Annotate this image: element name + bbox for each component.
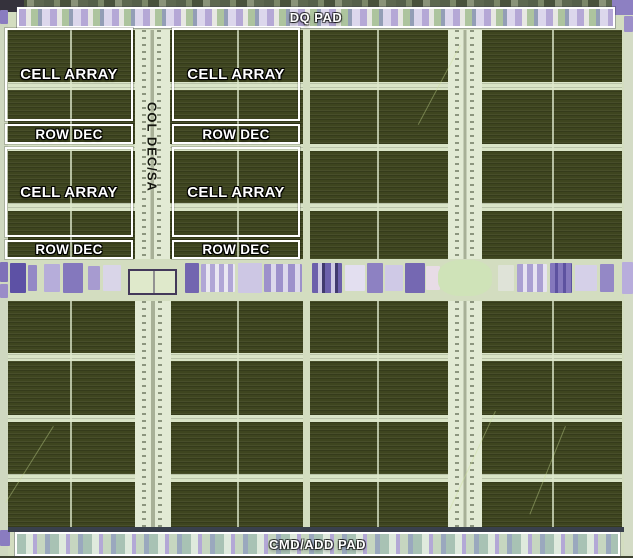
periphery-block — [63, 263, 83, 293]
periphery-block — [600, 264, 614, 292]
col-dec-sa-label: COL DEC/SA — [134, 86, 170, 208]
row-dec-label: ROW DEC — [202, 242, 269, 257]
cmd-add-pad-band: CMD/ADD PAD — [15, 532, 620, 556]
periphery-block — [345, 265, 365, 291]
cmd-add-pad-label: CMD/ADD PAD — [269, 537, 366, 552]
cell-array-label: CELL ARRAY — [187, 184, 284, 201]
cell-array-panel-lower-left — [8, 301, 303, 529]
periphery-block — [367, 263, 383, 293]
row-dec-label: ROW DEC — [35, 242, 102, 257]
periphery-block — [103, 265, 121, 291]
edge-pad-blob — [0, 284, 8, 298]
cell-array-label: CELL ARRAY — [20, 66, 117, 83]
row-dec-annotation-box: ROW DEC — [5, 240, 133, 259]
edge-pad-blob — [622, 262, 633, 294]
periphery-green-blob — [438, 260, 492, 296]
periphery-block — [238, 263, 262, 293]
row-dec-annotation-box: ROW DEC — [172, 124, 300, 144]
dq-pad-label: DQ PAD — [290, 10, 343, 25]
fuse-box-divider — [153, 271, 155, 293]
cell-array-label: CELL ARRAY — [187, 66, 284, 83]
array-column-divider — [552, 30, 554, 259]
column-decoder-strip — [448, 301, 482, 529]
periphery-block — [201, 264, 235, 292]
cell-array-label: CELL ARRAY — [20, 184, 117, 201]
periphery-block — [405, 263, 425, 293]
cell-array-annotation-box: CELL ARRAY — [5, 147, 133, 237]
cell-array-annotation-box: CELL ARRAY — [172, 147, 300, 237]
row-dec-annotation-box: ROW DEC — [172, 240, 300, 259]
periphery-block — [498, 265, 514, 291]
edge-pad-blob — [0, 10, 8, 24]
die-corner-patch — [612, 0, 633, 15]
cell-array-panel-lower-right — [310, 301, 622, 529]
periphery-block — [28, 265, 37, 291]
die-scratch — [529, 426, 566, 514]
cell-array-annotation-box: CELL ARRAY — [172, 28, 300, 121]
periphery-block — [575, 265, 597, 291]
periphery-block — [385, 265, 403, 291]
cell-array-panel-upper-right — [310, 30, 622, 259]
periphery-block — [550, 263, 572, 293]
periphery-block — [185, 263, 199, 293]
row-dec-label: ROW DEC — [202, 127, 269, 142]
array-column-divider — [237, 301, 239, 529]
array-column-divider — [70, 301, 72, 529]
periphery-block — [517, 264, 547, 292]
periphery-block — [10, 263, 26, 293]
array-column-divider — [552, 301, 554, 529]
column-decoder-strip — [135, 301, 171, 529]
edge-pad-blob — [624, 16, 633, 32]
edge-pad-blob — [0, 530, 10, 546]
row-dec-annotation-box: ROW DEC — [5, 124, 133, 144]
periphery-block — [312, 263, 342, 293]
periphery-block — [88, 266, 100, 290]
dq-pad-band: DQ PAD — [17, 7, 615, 28]
column-decoder-strip — [448, 30, 482, 259]
edge-pad-blob — [0, 262, 8, 282]
periphery-block — [264, 264, 302, 292]
row-dec-label: ROW DEC — [35, 127, 102, 142]
center-fuse-box — [128, 269, 177, 295]
die-scratch — [5, 426, 54, 503]
periphery-block — [44, 264, 60, 292]
array-column-divider — [377, 30, 379, 259]
array-column-divider — [377, 301, 379, 529]
cell-array-annotation-box: CELL ARRAY — [5, 28, 133, 121]
dram-die-photo: DQ PAD CMD/ADD PAD CELL ARRAY ROW DEC CE… — [0, 0, 633, 558]
